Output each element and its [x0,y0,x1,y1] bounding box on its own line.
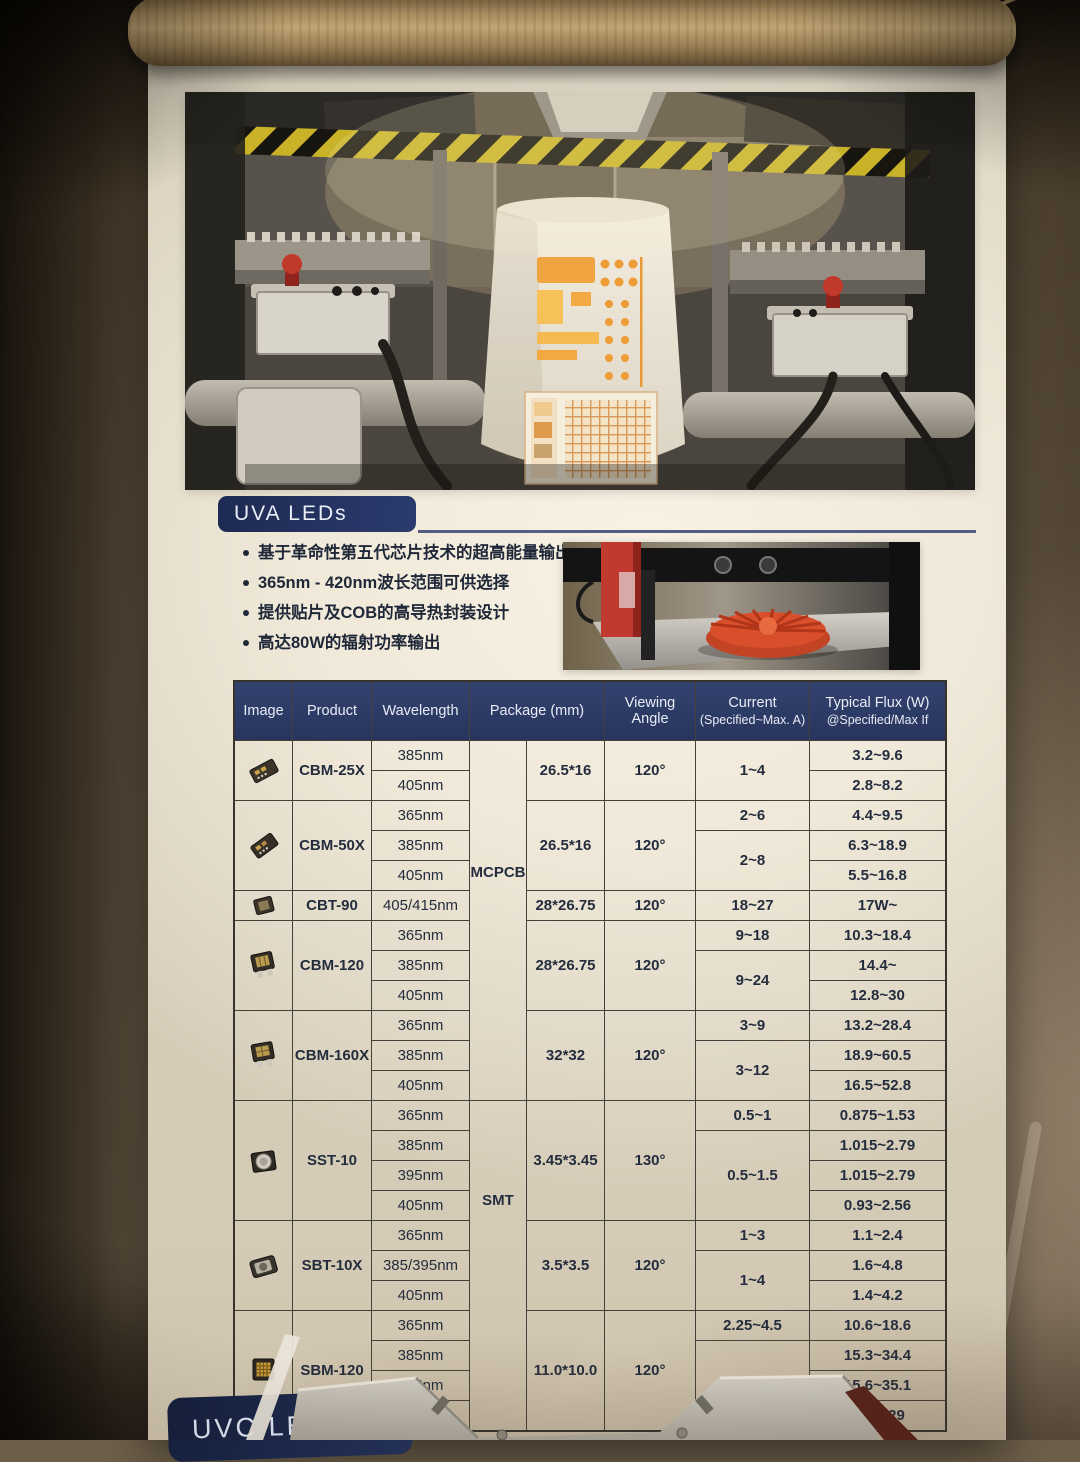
screw-icon [497,1430,507,1440]
package-size-cell: 26.5*16 [527,801,605,891]
flux-cell: 6.3~18.9 [810,831,947,861]
product-image-cell [234,921,293,1011]
section-divider-line [418,530,976,533]
wavelength-cell: 365nm [372,801,470,831]
flux-cell: 1.6~4.8 [810,1251,947,1281]
uva-led-poster: UVA LEDs 基于革命性第五代芯片技术的超高能量输出 365nm - 420… [148,56,1006,1440]
printer-photo [563,542,920,670]
bullet-text: 提供贴片及COB的高导热封装设计 [258,602,509,625]
product-image-cell [234,891,293,921]
grey-cover-silhouette [290,1376,878,1440]
bullet-item: 基于革命性第五代芯片技术的超高能量输出 [243,542,583,565]
bullet-dot-icon [243,610,249,616]
flat-smd-led-icon [247,1251,281,1281]
viewing-angle-cell: 120° [605,921,696,1011]
star-board-module-icon [247,949,281,983]
wavelength-cell: 405nm [372,981,470,1011]
product-image-cell [234,741,293,801]
current-cell: 9~24 [696,951,810,1011]
wavelength-cell: 405/415nm [372,891,470,921]
bullet-dot-icon [243,550,249,556]
viewing-angle-cell: Viewing Angle [605,681,696,741]
foreground-object [0,1300,1080,1440]
wavelength-cell: 365nm [372,1011,470,1041]
current-cell: 0.5~1 [696,1101,810,1131]
package-type-cell: MCPCB [470,741,527,1101]
flux-cell: 12.8~30 [810,981,947,1011]
flux-cell: 16.5~52.8 [810,1071,947,1101]
flux-cell: 5.5~16.8 [810,861,947,891]
current-header-cell: Current(Specified~Max. A) [696,681,810,741]
product-image-cell [234,1011,293,1101]
flux-cell: 3.2~9.6 [810,741,947,771]
bullet-item: 365nm - 420nm波长范围可供选择 [243,572,583,595]
compact-module-icon [249,893,279,919]
current-cell: 2~6 [696,801,810,831]
wavelength-cell: 395nm [372,1161,470,1191]
screw-icon [677,1428,687,1438]
uva-header-label: UVA LEDs [234,502,348,526]
bullet-text: 基于革命性第五代芯片技术的超高能量输出 [258,542,572,565]
package-size-cell: 3.5*3.5 [527,1221,605,1311]
flux-cell: 4.4~9.5 [810,801,947,831]
package-size-cell: 26.5*16 [527,741,605,801]
package-header-cell: Package (mm) [470,681,605,741]
package-size-cell: 28*26.75 [527,891,605,921]
wavelength-cell: 365nm [372,1221,470,1251]
wooden-hanger-rod [128,0,1016,66]
product-image-cell [234,1101,293,1221]
viewing-angle-cell: 120° [605,741,696,801]
product-cell: SST-10 [293,1101,372,1221]
table-row: SST-10 365nm SMT 3.45*3.45 130° 0.5~1 0.… [234,1101,946,1131]
table-header-row: Image Product Wavelength Package (mm) Vi… [234,681,946,741]
table-row: CBM-25X 385nm MCPCB 26.5*16 120° 1~4 3.2… [234,741,946,771]
flux-cell: 13.2~28.4 [810,1011,947,1041]
flux-header-cell: Typical Flux (W)@Specified/Max If [810,681,947,741]
star-board-module-icon [247,1039,281,1073]
current-cell: 18~27 [696,891,810,921]
table-row: CBT-90 405/415nm 28*26.75 120° 18~27 17W… [234,891,946,921]
table-row: CBM-50X 365nm 26.5*16 120° 2~6 4.4~9.5 [234,801,946,831]
flux-cell: 1.015~2.79 [810,1161,947,1191]
wavelength-cell: 365nm [372,1101,470,1131]
bullet-dot-icon [243,580,249,586]
right-estop-button [823,276,843,296]
table-row: SBT-10X 365nm 3.5*3.5 120° 1~3 1.1~2.4 [234,1221,946,1251]
flux-cell: 17W~ [810,891,947,921]
current-cell: 3~12 [696,1041,810,1101]
package-size-cell: 3.45*3.45 [527,1101,605,1221]
viewing-angle-cell: 120° [605,1221,696,1311]
product-image-cell: Image [234,681,293,741]
viewing-angle-cell: 120° [605,891,696,921]
current-cell: 3~9 [696,1011,810,1041]
product-cell: CBM-160X [293,1011,372,1101]
feature-bullet-list: 基于革命性第五代芯片技术的超高能量输出 365nm - 420nm波长范围可供选… [243,542,583,662]
bullet-item: 提供贴片及COB的高导热封装设计 [243,602,583,625]
wavelength-cell: 385nm [372,741,470,771]
wavelength-cell: 365nm [372,921,470,951]
wavelength-cell: 405nm [372,771,470,801]
wavelength-cell: 385/395nm [372,1251,470,1281]
left-estop-button [282,254,302,274]
flux-cell: 18.9~60.5 [810,1041,947,1071]
bullet-item: 高达80W的辐射功率输出 [243,632,583,655]
uva-section-header: UVA LEDs [218,496,416,532]
dome-smd-led-icon [248,1146,280,1176]
current-cell: 9~18 [696,921,810,951]
machine-photo [185,92,975,490]
pcb-strip-module-icon [246,756,282,786]
flux-cell: 1.015~2.79 [810,1131,947,1161]
bullet-text: 365nm - 420nm波长范围可供选择 [258,572,509,595]
product-cell: SBT-10X [293,1221,372,1311]
pcb-strip-module-icon [246,831,282,861]
wavelength-cell: 405nm [372,1191,470,1221]
product-cell: CBM-25X [293,741,372,801]
flux-cell: 0.875~1.53 [810,1101,947,1131]
current-cell: 0.5~1.5 [696,1131,810,1221]
product-cell: CBM-120 [293,921,372,1011]
wavelength-cell: 385nm [372,1131,470,1161]
table-row: CBM-160X 365nm 32*32 120° 3~9 13.2~28.4 [234,1011,946,1041]
bullet-dot-icon [243,640,249,646]
wavelength-cell: 385nm [372,1041,470,1071]
bullet-text: 高达80W的辐射功率输出 [258,632,440,655]
wavelength-cell: 405nm [372,861,470,891]
wavelength-cell: 385nm [372,951,470,981]
wavelength-cell: Wavelength [372,681,470,741]
wavelength-cell: 385nm [372,831,470,861]
product-cell: CBT-90 [293,891,372,921]
wavelength-cell: 405nm [372,1071,470,1101]
product-image-cell [234,801,293,891]
viewing-angle-cell: 120° [605,1011,696,1101]
product-cell: Product [293,681,372,741]
flux-cell: 10.3~18.4 [810,921,947,951]
current-cell: 1~3 [696,1221,810,1251]
white-stick [246,1334,300,1440]
flux-cell: 2.8~8.2 [810,771,947,801]
flux-cell: 14.4~ [810,951,947,981]
current-cell: 2~8 [696,831,810,891]
flux-cell: 0.93~2.56 [810,1191,947,1221]
product-cell: CBM-50X [293,801,372,891]
package-size-cell: 32*32 [527,1011,605,1101]
product-image-cell [234,1221,293,1311]
table-row: CBM-120 365nm 28*26.75 120° 9~18 10.3~18… [234,921,946,951]
package-size-cell: 28*26.75 [527,921,605,1011]
current-cell: 1~4 [696,741,810,801]
flux-cell: 1.1~2.4 [810,1221,947,1251]
viewing-angle-cell: 120° [605,801,696,891]
viewing-angle-cell: 130° [605,1101,696,1221]
